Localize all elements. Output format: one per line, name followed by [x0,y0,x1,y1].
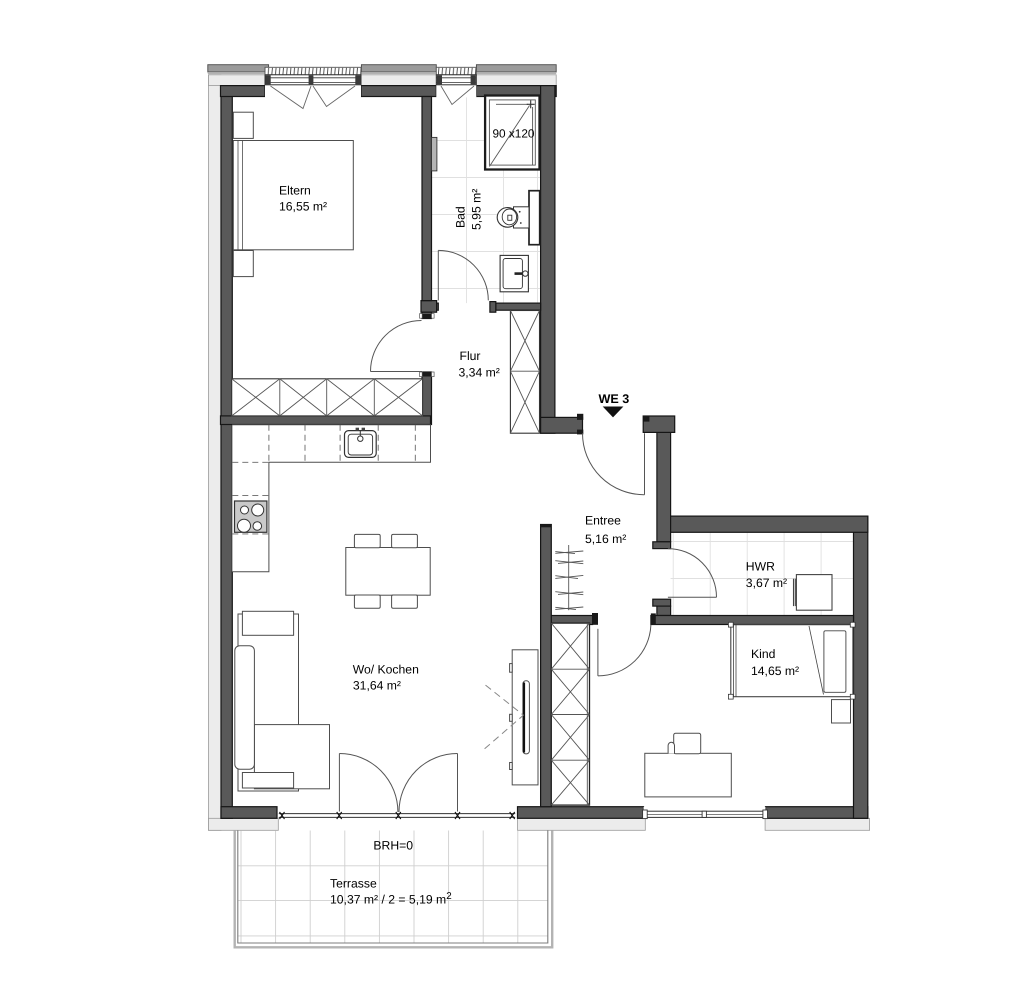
svg-text:Eltern: Eltern [279,184,311,198]
svg-text:90 x120: 90 x120 [493,127,535,141]
svg-text:Terrasse: Terrasse [330,877,377,891]
svg-text:Kind: Kind [751,647,775,661]
svg-text:16,55 m²: 16,55 m² [279,200,327,214]
svg-text:Bad: Bad [454,206,468,228]
svg-text:31,64 m²: 31,64 m² [353,679,401,693]
svg-text:BRH=0: BRH=0 [373,839,413,853]
svg-text:10,37 m² / 2 = 5,19 m2: 10,37 m² / 2 = 5,19 m2 [330,891,452,907]
svg-text:Flur: Flur [460,349,481,363]
svg-text:HWR: HWR [746,560,775,574]
svg-text:3,67 m²: 3,67 m² [746,576,787,590]
svg-text:14,65 m²: 14,65 m² [751,664,799,678]
svg-text:WE 3: WE 3 [599,392,630,406]
svg-text:5,16 m²: 5,16 m² [585,532,626,546]
svg-text:Wo/ Kochen: Wo/ Kochen [353,662,419,676]
svg-text:3,34 m²: 3,34 m² [459,366,500,380]
svg-text:5,95 m²: 5,95 m² [470,189,484,230]
svg-text:Entree: Entree [585,514,621,528]
